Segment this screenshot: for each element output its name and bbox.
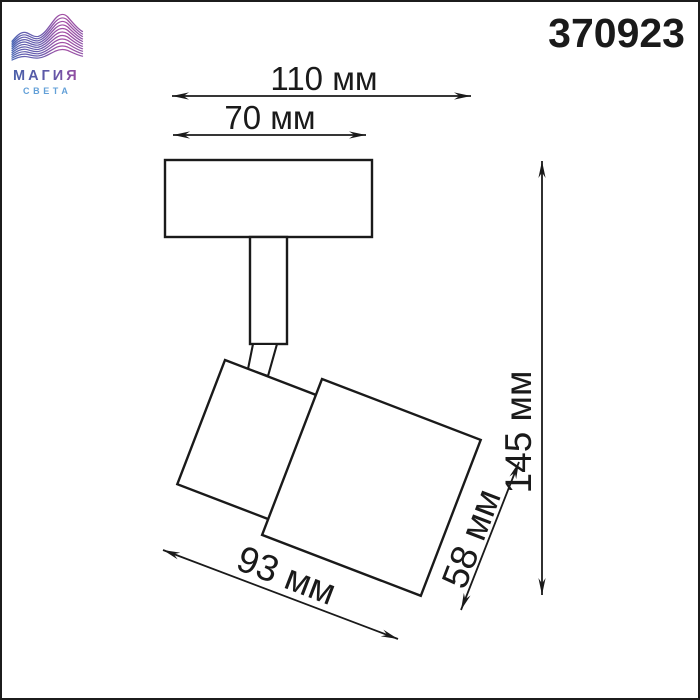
page: МАГИЯ СВЕТА 370923 110 мм 70 мм [0, 0, 700, 700]
dim-label-overall-height: 145 мм [498, 371, 539, 494]
fixture-stem [250, 237, 287, 344]
dim-label-base-width: 70 мм [224, 99, 315, 136]
dim-label-overall-width: 110 мм [270, 60, 377, 97]
technical-drawing: 110 мм 70 мм 145 мм 58 мм 93 мм [2, 2, 698, 698]
ceiling-base-plate [165, 160, 372, 237]
